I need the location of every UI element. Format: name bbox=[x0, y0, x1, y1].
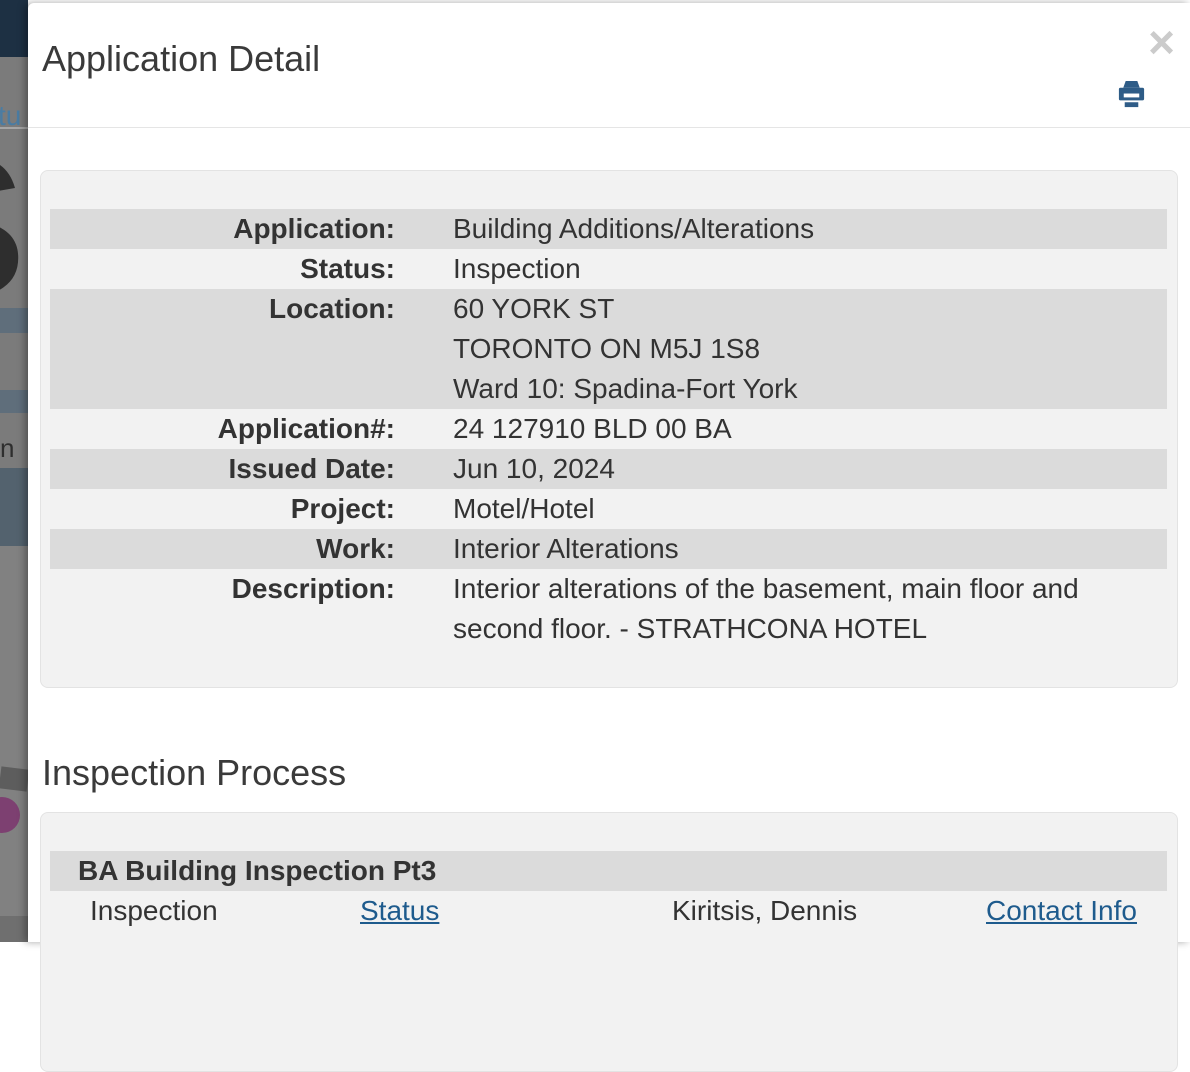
print-icon[interactable] bbox=[1116, 79, 1147, 110]
printer-glyph bbox=[1116, 79, 1147, 110]
background-blob-fragment bbox=[0, 766, 28, 791]
background-text-fragment: n bbox=[0, 434, 14, 463]
contact-info-link[interactable]: Contact Info bbox=[986, 895, 1137, 926]
application-detail-table: Application: Building Additions/Alterati… bbox=[50, 209, 1167, 649]
dimmed-page-background: tu S n bbox=[0, 0, 28, 942]
row-value: Interior alterations of the basement, ma… bbox=[411, 569, 1167, 649]
background-band-fragment bbox=[0, 390, 28, 413]
table-row: Location: 60 YORK ST TORONTO ON M5J 1S8 … bbox=[50, 289, 1167, 409]
inspection-type: Inspection bbox=[50, 891, 360, 931]
table-row: Issued Date: Jun 10, 2024 bbox=[50, 449, 1167, 489]
row-label: Status: bbox=[50, 249, 411, 289]
background-map-fragment bbox=[0, 546, 28, 942]
row-label: Project: bbox=[50, 489, 411, 529]
inspection-group-header: BA Building Inspection Pt3 bbox=[50, 851, 1167, 891]
inspection-process-panel: BA Building Inspection Pt3 Inspection St… bbox=[40, 812, 1178, 1072]
row-label: Application: bbox=[50, 209, 411, 249]
modal-body: Application: Building Additions/Alterati… bbox=[28, 170, 1190, 1072]
table-row: Work: Interior Alterations bbox=[50, 529, 1167, 569]
table-row: Status: Inspection bbox=[50, 249, 1167, 289]
row-value: Inspection bbox=[411, 249, 1167, 289]
background-letter-fragment: S bbox=[0, 128, 27, 328]
row-label: Issued Date: bbox=[50, 449, 411, 489]
row-label: Location: bbox=[50, 289, 411, 409]
inspection-row: Inspection Status Kiritsis, Dennis Conta… bbox=[50, 891, 1167, 931]
application-summary-panel: Application: Building Additions/Alterati… bbox=[40, 170, 1178, 688]
row-value: Interior Alterations bbox=[411, 529, 1167, 569]
modal-header: Application Detail × bbox=[28, 3, 1190, 128]
modal-title: Application Detail bbox=[42, 38, 320, 80]
status-link[interactable]: Status bbox=[360, 895, 439, 926]
row-label: Work: bbox=[50, 529, 411, 569]
background-band-fragment bbox=[0, 916, 28, 942]
table-row: Description: Interior alterations of the… bbox=[50, 569, 1167, 649]
table-row: Application: Building Additions/Alterati… bbox=[50, 209, 1167, 249]
row-label: Application#: bbox=[50, 409, 411, 449]
background-band-fragment bbox=[0, 468, 28, 546]
row-value: Jun 10, 2024 bbox=[411, 449, 1167, 489]
row-value: 24 127910 BLD 00 BA bbox=[411, 409, 1167, 449]
row-value: Building Additions/Alterations bbox=[411, 209, 1167, 249]
background-band-fragment bbox=[0, 308, 28, 333]
inspection-process-heading: Inspection Process bbox=[42, 752, 1178, 794]
close-icon[interactable]: × bbox=[1148, 25, 1175, 60]
inspector-name: Kiritsis, Dennis bbox=[672, 891, 986, 931]
table-row: Project: Motel/Hotel bbox=[50, 489, 1167, 529]
table-row: Application#: 24 127910 BLD 00 BA bbox=[50, 409, 1167, 449]
row-value: Motel/Hotel bbox=[411, 489, 1167, 529]
application-detail-modal: Application Detail × Application: Buildi… bbox=[28, 3, 1190, 942]
row-label: Description: bbox=[50, 569, 411, 649]
background-header-fragment bbox=[0, 0, 28, 57]
row-value: 60 YORK ST TORONTO ON M5J 1S8 Ward 10: S… bbox=[411, 289, 1167, 409]
